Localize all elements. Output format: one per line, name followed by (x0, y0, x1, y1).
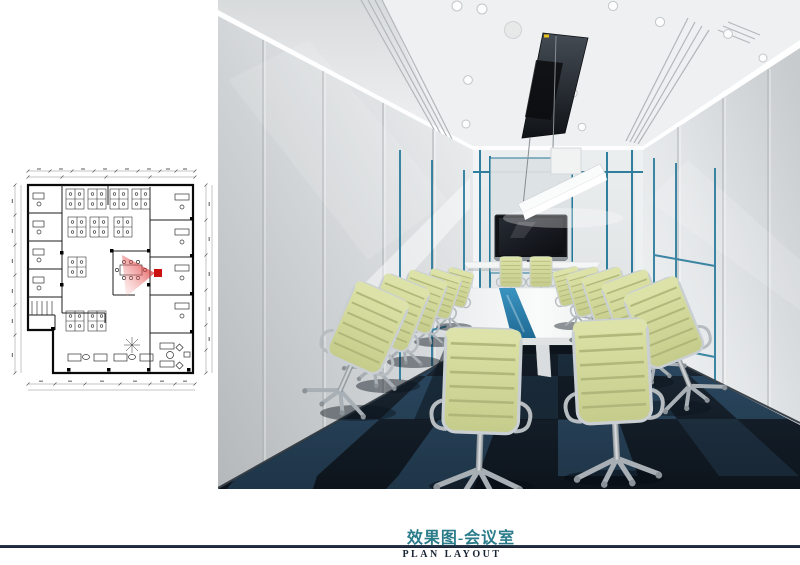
floor-plan-svg (10, 165, 215, 400)
meeting-room-svg (218, 0, 800, 489)
ceiling-speaker (505, 22, 522, 39)
presentation-board: 效果图-会议室 PLAN LAYOUT (0, 0, 800, 565)
caption-title-english: PLAN LAYOUT (352, 549, 552, 560)
plan-workstations (66, 189, 150, 331)
plan-columns (51, 217, 194, 372)
plan-view-cone-marker (122, 255, 162, 297)
plan-furniture (33, 193, 190, 369)
dimension-lines (12, 168, 212, 390)
meeting-room-render (218, 0, 800, 489)
caption-divider-rule (0, 545, 800, 548)
dimension-numerals (12, 168, 210, 381)
floor-plan-thumbnail (10, 165, 215, 400)
